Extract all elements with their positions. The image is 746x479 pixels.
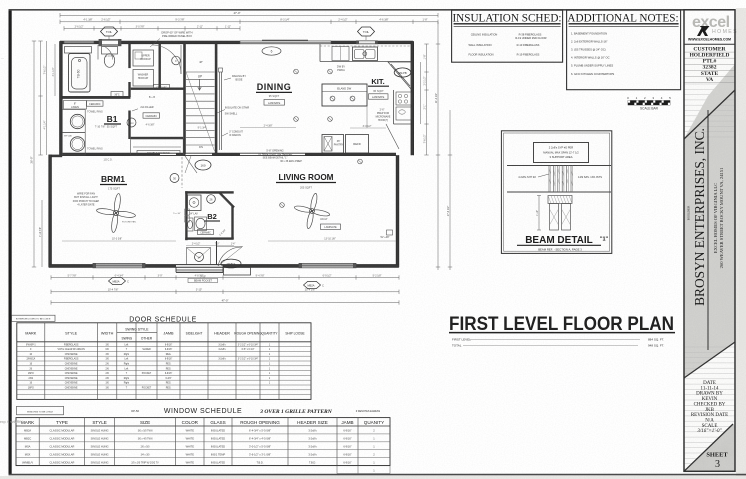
svg-text:...: ... — [1, 55, 4, 60]
svg-text:exp. t. sviNRtV: exp. t. sviNRtV — [0, 420, 23, 424]
